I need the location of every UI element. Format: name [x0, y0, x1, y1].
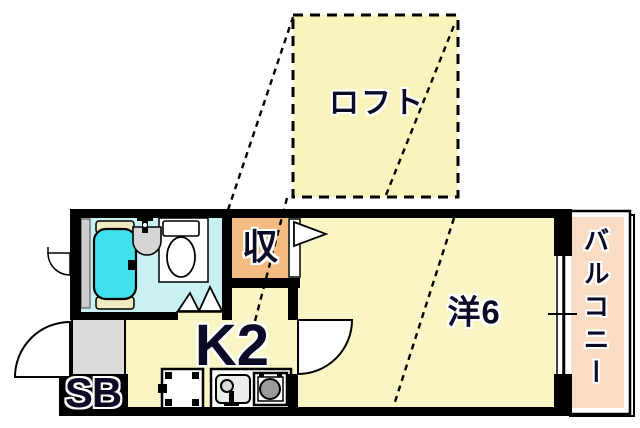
floor-plan-drawing — [0, 0, 640, 428]
kitchen-sink — [216, 375, 250, 406]
wall-bathroom-right — [222, 209, 232, 320]
wall-right-upper — [554, 209, 572, 256]
kitchen-label: K2 — [195, 317, 269, 375]
wall-left — [70, 209, 81, 320]
shoe-box-label: SB — [65, 372, 121, 414]
loft-diagonal-left — [228, 17, 293, 210]
wall-bottom — [62, 407, 572, 416]
wall-right-lower — [554, 374, 572, 416]
closet-label: 収 — [242, 229, 278, 265]
bathtub — [94, 221, 136, 309]
wall-bathroom-bottom — [70, 312, 178, 320]
pipe-space — [81, 219, 90, 308]
floor-plan: ロフト 収 洋6 K2 SB バルコニー — [0, 0, 640, 428]
balcony-label: バルコニー — [582, 227, 608, 392]
entrance-door-arc — [15, 322, 70, 377]
wall-top — [70, 209, 572, 218]
loft-label: ロフト — [329, 89, 425, 119]
western-room-label: 洋6 — [447, 296, 500, 329]
drain-icon — [158, 384, 167, 393]
wall-partition-lower — [288, 374, 298, 407]
bathtub-handle-icon — [128, 260, 135, 270]
wall-partition-upper — [288, 278, 298, 320]
meter-box-door-arc — [48, 247, 70, 275]
